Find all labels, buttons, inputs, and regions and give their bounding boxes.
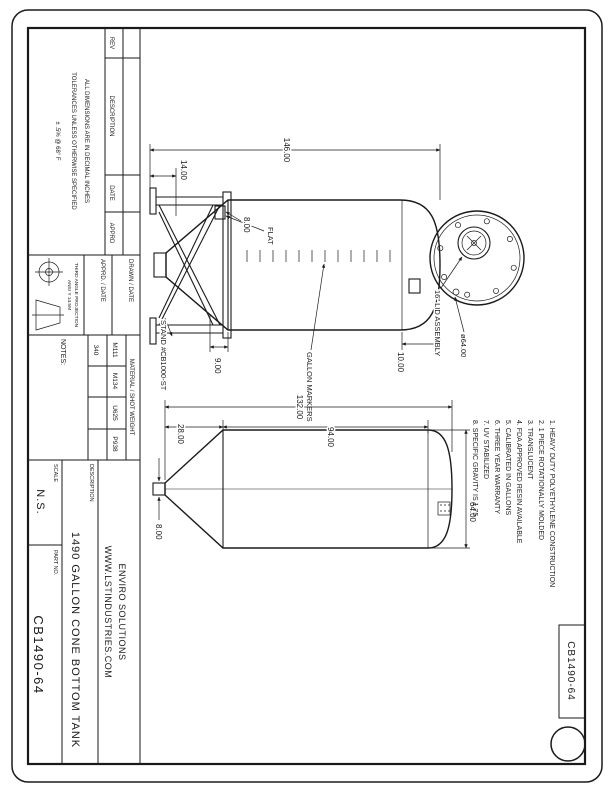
gallon-markers-callout: GALLON MARKERS [305,352,314,422]
description-label: DESCRIPTION [88,464,94,502]
dim-dome-height: 10.00 [396,352,405,373]
drawing-sheet-rotated: REV DESCRIPTION DATE APPRD ALL DIMENSION… [0,0,612,792]
part-no-value: CB1490-64 [31,615,46,694]
lid-assembly-callout: 16" LID ASSEMBLY [433,290,442,356]
material-col-m134: M134 [111,373,118,390]
corner-tab-circle [551,727,585,761]
apprd-date-label: APPRD. / DATE [99,259,105,302]
front-lid-detail [438,502,450,515]
part-no-label: PART NO. [52,550,58,576]
notes-list: 1. HEAVY DUTY POLYETHYLENE CONSTRUCTION … [471,420,555,587]
engineering-drawing-svg: REV DESCRIPTION DATE APPRD ALL DIMENSION… [0,0,612,792]
tolerance-line-2: TOLERANCES UNLESS OTHERWISE SPECIFIED [70,72,76,210]
side-fitting-circle [453,289,459,295]
projection-circle-icon [35,258,63,286]
material-table-header: MATERIAL / SHOT WEIGHT [128,359,134,436]
stand-callout: STAND #CB1000-ST [159,320,168,391]
bolt-circles [438,219,517,298]
drawn-date-label: DRAWN / DATE [127,259,133,302]
note-2: 2. 1 PIECE ROTATIONALLY MOLDED [537,420,544,540]
corner-tab-part-no: CB1490-64 [565,641,576,701]
material-col-p938: P938 [111,436,118,452]
date-header: DATE [108,185,114,201]
top-view-leaders [441,257,464,332]
dim-front-cylinder: 94.00 [326,427,335,448]
apprd-header: APPRD [108,223,114,244]
flat-callout: FLAT [266,227,275,245]
corner-tab: CB1490-64 [551,625,585,761]
projection-line-2: ANSI Y 14.5M [66,280,72,310]
material-val-340: 340 [92,345,99,356]
dim-front-overall: 132.00 [295,395,304,420]
notes-label: NOTES: [59,339,66,365]
description-header: DESCRIPTION [108,95,114,136]
company-name: ENVIRO SOLUTIONS [117,563,127,660]
tolerance-line-3: ± .5% @ 68° F [54,121,60,160]
projection-line-1: THIRD ANGLE PROJECTION [73,263,79,328]
note-7: 7. UV STABILIZED [482,420,489,479]
projection-cone-icon [32,300,64,330]
scale-label: SCALE [52,464,58,482]
drawing-description: 1490 GALLON CONE BOTTOM TANK [69,532,81,748]
company-url: WWW.LSTINDUSTRIES.COM [103,546,113,679]
front-view-dimensions [159,400,470,548]
scale-value: N.S. [34,489,46,514]
gallon-marker-ticks [247,250,390,262]
tolerance-note: ALL DIMENSIONS ARE IN DECIMAL INCHES TOL… [54,72,89,210]
note-6: 6. THREE YEAR WARRANTY [493,420,500,514]
dim-front-outlet: 8.00 [154,524,163,540]
dome-fitting [409,279,420,293]
dim-front-cone: 28.00 [176,424,185,445]
approval-block: DRAWN / DATE APPRD. / DATE [28,255,140,335]
title-block: ENVIRO SOLUTIONS WWW.LSTINDUSTRIES.COM D… [28,460,127,764]
dim-overall-height: 146.00 [282,138,291,163]
side-view-dimensions [150,144,440,352]
note-4: 4. FDA APPROVED RESIN AVAILABLE [515,420,522,544]
rev-header: REV [108,37,114,49]
side-view: 146.00 14.00 9.00 10.00 FLAT 8.00 STAND … [150,138,440,422]
dim-flat: 8.00 [242,217,251,233]
dim-cone-offset: 9.00 [213,358,222,374]
front-view: 132.00 94.00 28.00 64.00 8.00 [153,395,477,548]
drawing-page: REV DESCRIPTION DATE APPRD ALL DIMENSION… [0,0,612,792]
note-3: 3. TRANSLUCENT [526,420,533,480]
lid-circle [458,227,490,259]
projection-block: THIRD ANGLE PROJECTION ANSI Y 14.5M [32,258,79,330]
note-8: 8. SPECIFIC GRAVITY IS 1.75 [471,420,478,516]
dim-diameter-callout: ø64.00 [459,334,468,357]
material-table: MATERIAL / SHOT WEIGHT M111 M134 U625 P9… [28,335,140,460]
tolerance-line-1: ALL DIMENSIONS ARE IN DECIMAL INCHES [83,79,89,203]
dim-stand-height: 14.00 [179,160,188,181]
note-1: 1. HEAVY DUTY POLYETHYLENE CONSTRUCTION [548,420,555,587]
material-col-u625: U625 [111,405,118,421]
top-view: ø64.00 16" LID ASSEMBLY [430,211,524,357]
note-5: 5. CALIBRATED IN GALLONS [504,420,511,516]
material-col-m111: M111 [111,342,118,358]
